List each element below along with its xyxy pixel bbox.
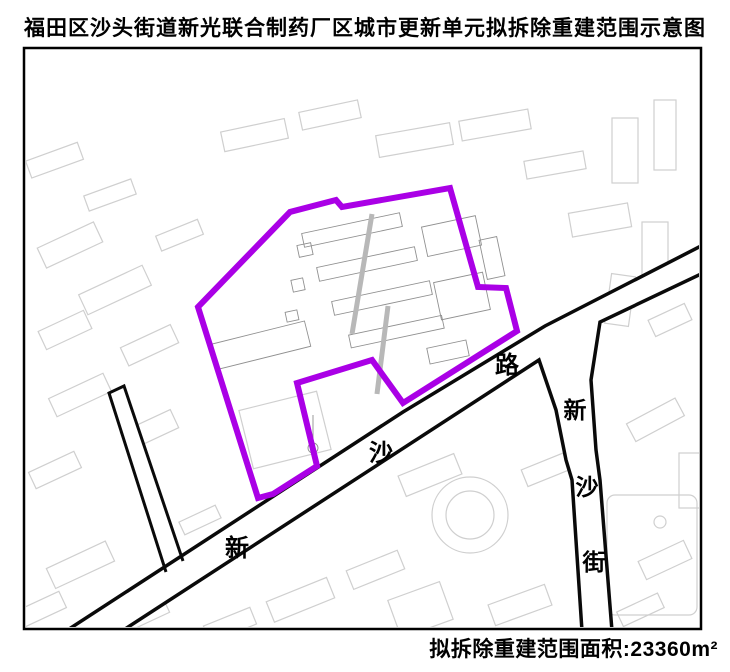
xinsha-road-label-char-3: 路	[495, 351, 520, 379]
xinsha-street-label-char-3: 街	[582, 549, 606, 575]
xinsha-street-label-char-2: 沙	[576, 474, 599, 500]
xinsha-road-label-char-1: 新	[225, 534, 249, 562]
area-caption-value: 23360	[630, 638, 691, 661]
area-caption: 拟拆除重建范围面积:23360m²	[429, 633, 718, 663]
xinsha-street-label-char-1: 新	[564, 397, 587, 423]
map-canvas: 新 沙 路 新 沙 街	[0, 0, 730, 672]
xinsha-road-label-char-2: 沙	[369, 440, 393, 467]
area-caption-unit: m²	[691, 638, 718, 661]
area-caption-label: 拟拆除重建范围面积	[429, 638, 623, 661]
